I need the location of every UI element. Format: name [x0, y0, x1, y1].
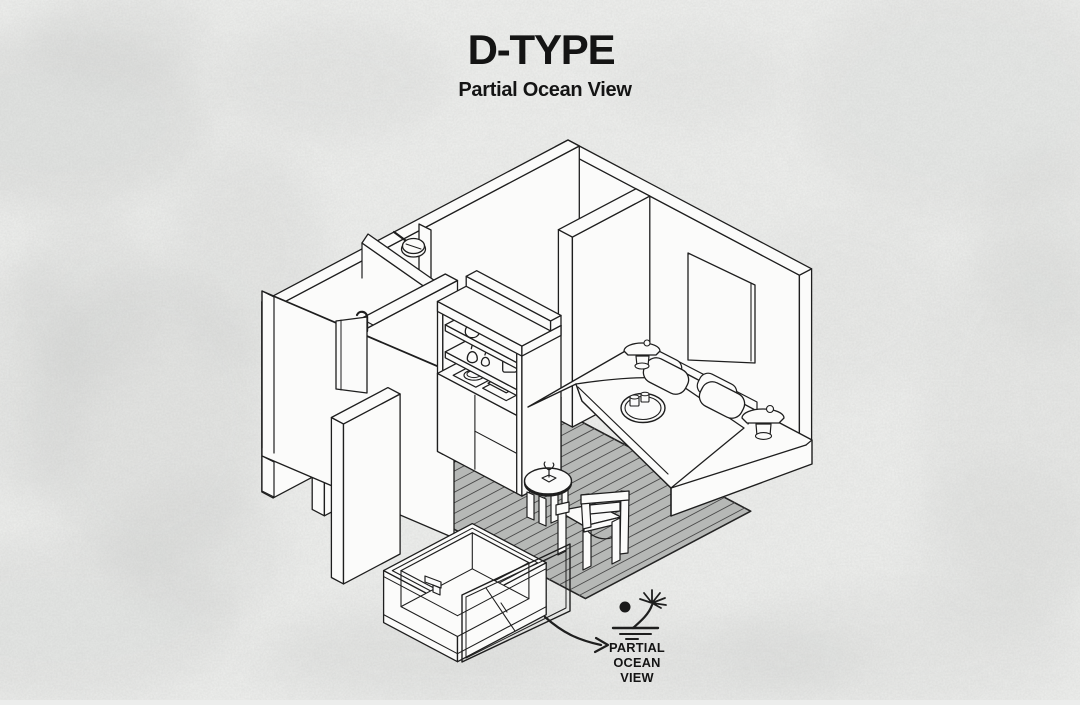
svg-text:OCEAN: OCEAN: [613, 655, 660, 670]
svg-text:VIEW: VIEW: [620, 670, 654, 685]
svg-text:D-TYPE: D-TYPE: [468, 26, 615, 73]
svg-text:Partial Ocean View: Partial Ocean View: [458, 79, 632, 101]
svg-text:PARTIAL: PARTIAL: [609, 640, 665, 655]
